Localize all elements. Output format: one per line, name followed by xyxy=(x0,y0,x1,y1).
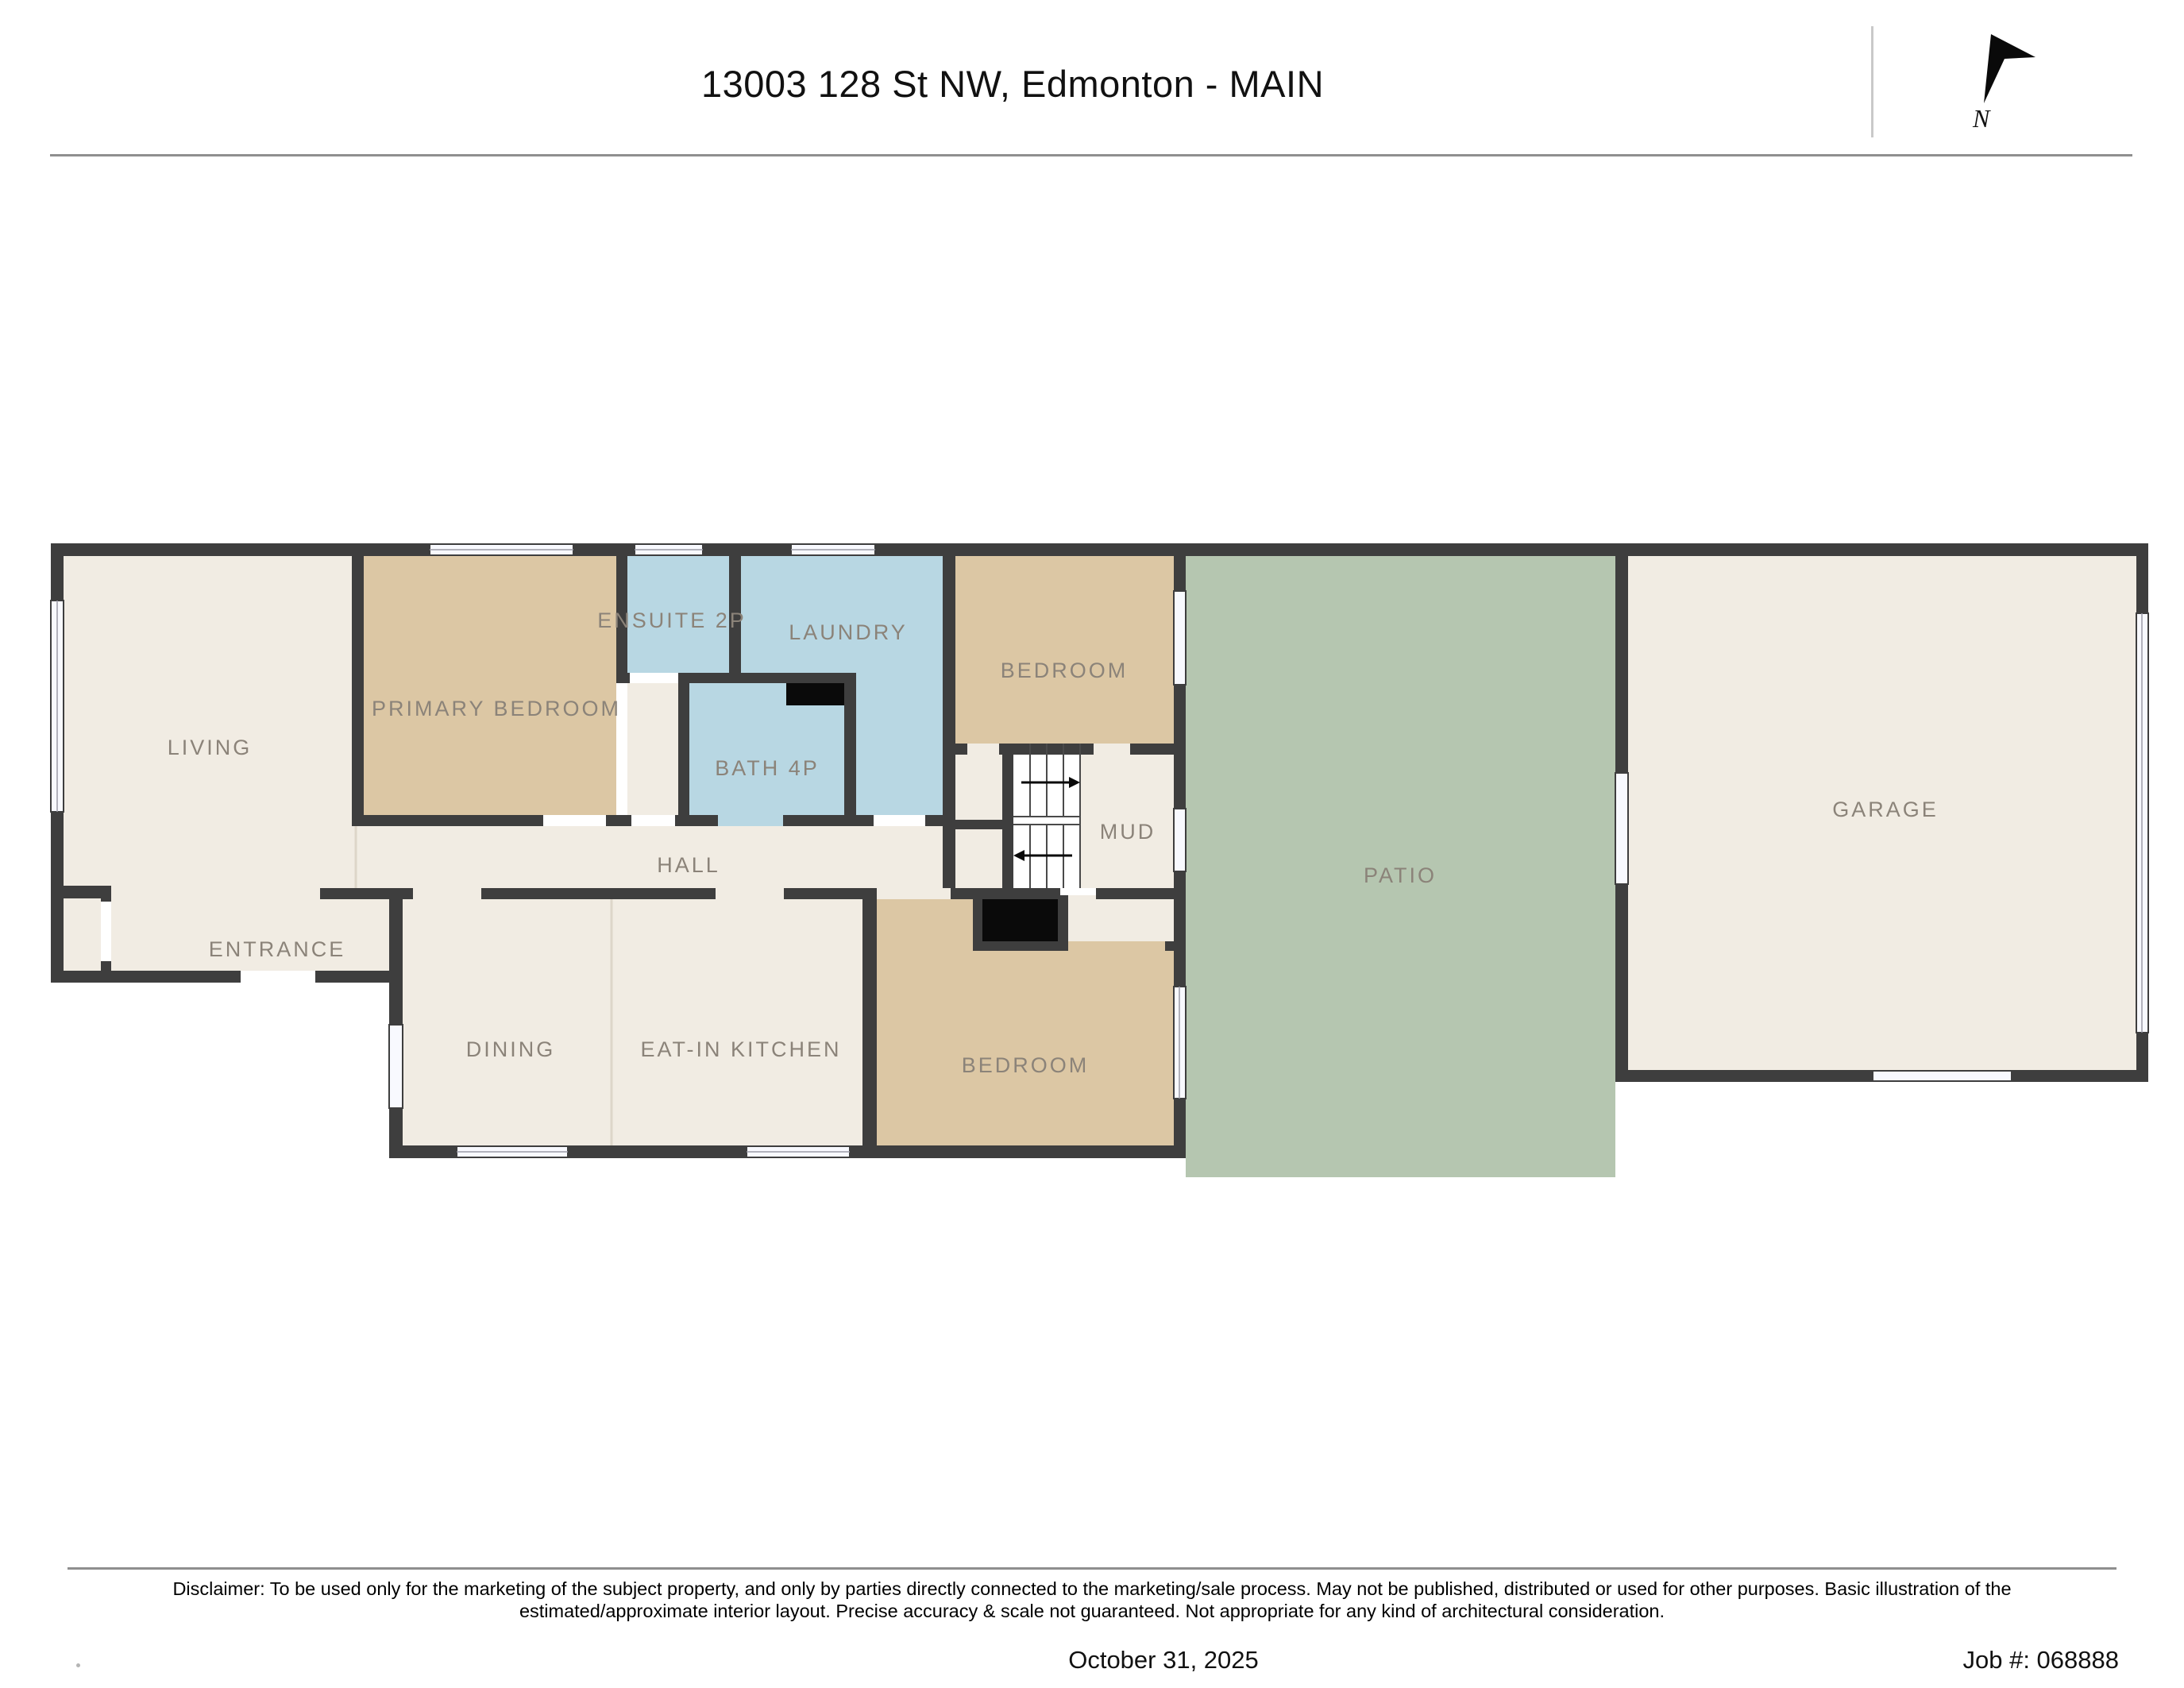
wall xyxy=(678,673,856,683)
wall xyxy=(1130,744,1174,755)
wall xyxy=(1615,1070,1873,1082)
floor-plan: LIVING PRIMARY BEDROOM ENSUITE 2P LAUNDR… xyxy=(0,0,2184,1688)
room-mud xyxy=(1080,744,1174,888)
wall xyxy=(862,888,877,1158)
room-bedroom-top xyxy=(955,556,1174,744)
footer-date: October 31, 2025 xyxy=(1068,1646,1259,1674)
wall xyxy=(943,556,955,888)
room-dining-kitchen xyxy=(403,899,862,1145)
room-label-dining: DINING xyxy=(466,1037,556,1061)
wall xyxy=(101,886,111,902)
wall xyxy=(2012,1070,2148,1082)
wall xyxy=(1002,744,1013,899)
room-label-ensuite: ENSUITE 2P xyxy=(597,608,747,632)
room-label-living: LIVING xyxy=(168,736,253,759)
disclaimer-line-2: estimated/approximate interior layout. P… xyxy=(0,1600,2184,1622)
wall xyxy=(101,961,111,971)
wall xyxy=(2136,1033,2148,1070)
room-label-mud: MUD xyxy=(1100,820,1156,844)
room-label-primary-bedroom: PRIMARY BEDROOM xyxy=(372,697,621,720)
room-label-patio: PATIO xyxy=(1364,863,1437,887)
wall xyxy=(389,888,403,1158)
disclaimer: Disclaimer: To be used only for the mark… xyxy=(0,1578,2184,1622)
window xyxy=(1873,1071,2012,1081)
wall xyxy=(955,744,967,755)
room-label-hall: HALL xyxy=(657,853,720,877)
bath-vestibule xyxy=(627,683,678,815)
bedroom-vestibule xyxy=(1068,895,1174,941)
wall xyxy=(1058,895,1068,941)
room-label-laundry: LAUNDRY xyxy=(789,620,908,644)
window xyxy=(389,1025,403,1108)
patio-door xyxy=(1174,809,1186,871)
room-label-entrance: ENTRANCE xyxy=(209,937,346,961)
wall xyxy=(616,673,630,683)
wall xyxy=(481,888,716,899)
wall xyxy=(51,543,2148,556)
wall xyxy=(678,673,689,826)
wall xyxy=(352,556,364,826)
wall xyxy=(783,815,874,826)
footer-divider xyxy=(68,1567,2116,1570)
footer-dot xyxy=(76,1663,80,1667)
room-label-garage: GARAGE xyxy=(1832,798,1939,821)
room-label-bath: BATH 4P xyxy=(715,756,820,780)
room-primary-bedroom xyxy=(364,556,616,815)
bedroom-closet-dark xyxy=(982,895,1058,941)
floorplan-page: 13003 128 St NW, Edmonton - MAIN N xyxy=(0,0,2184,1688)
closet-door-opening xyxy=(101,902,111,961)
room-fills xyxy=(64,556,2136,1177)
wall xyxy=(51,971,403,983)
wall xyxy=(606,815,631,826)
window xyxy=(1174,591,1186,685)
wall xyxy=(2136,556,2148,613)
room-label-kitchen: EAT-IN KITCHEN xyxy=(640,1037,841,1061)
disclaimer-line-1: Disclaimer: To be used only for the mark… xyxy=(0,1578,2184,1600)
front-door-opening xyxy=(241,971,315,983)
wall xyxy=(844,673,856,826)
wall xyxy=(1615,884,1628,1070)
bath-fixture-dark xyxy=(786,683,847,705)
wall xyxy=(320,888,413,899)
wall xyxy=(784,888,862,899)
wall xyxy=(951,888,1060,899)
wall xyxy=(352,815,543,826)
wall xyxy=(1096,888,1174,899)
room-label-bedroom-top: BEDROOM xyxy=(1001,659,1129,682)
wall xyxy=(1165,941,1174,951)
garage-patio-door xyxy=(1615,773,1628,884)
wall xyxy=(973,941,1068,951)
footer-job-number: Job #: 068888 xyxy=(1962,1646,2119,1674)
room-label-bedroom-lower: BEDROOM xyxy=(962,1053,1090,1077)
wall xyxy=(1615,556,1628,773)
